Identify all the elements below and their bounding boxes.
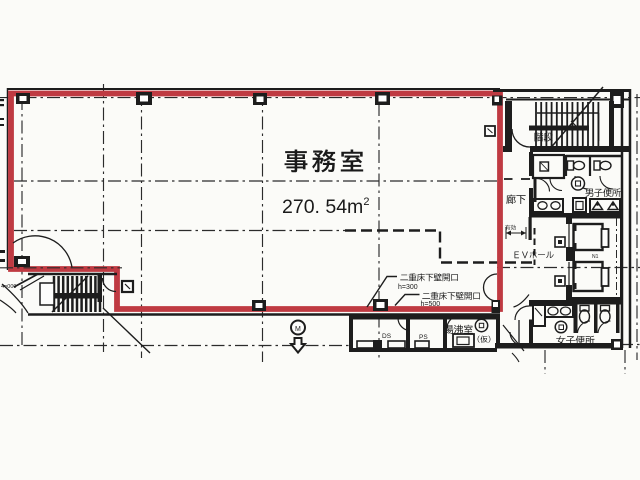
svg-text:PS: PS — [419, 334, 428, 341]
svg-text:4=000: 4=000 — [1, 284, 16, 290]
svg-text:270. 54m2: 270. 54m2 — [282, 196, 369, 218]
svg-text:N1: N1 — [592, 254, 599, 260]
svg-text:M: M — [295, 326, 301, 333]
svg-text:DS: DS — [382, 333, 392, 340]
svg-text:h=500: h=500 — [421, 301, 441, 308]
svg-text:h=300: h=300 — [398, 284, 418, 291]
